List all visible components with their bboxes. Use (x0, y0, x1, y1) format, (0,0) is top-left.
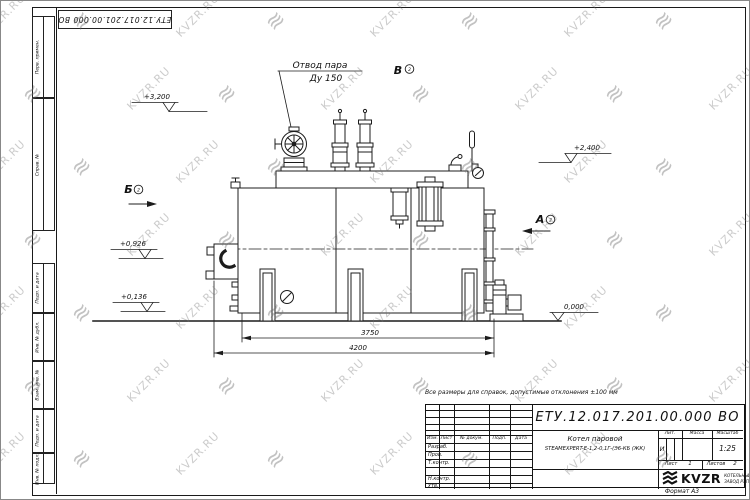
staff-utv: Утв. (426, 483, 456, 489)
col-date: Дата (510, 435, 532, 443)
view-marker-b: Б 2 (124, 183, 157, 207)
side-valve (231, 182, 240, 188)
sidebox-perv-primen: Перв. примен. (32, 16, 55, 98)
lit-value: И (658, 438, 666, 460)
view-marker-v: В 2 (394, 64, 414, 77)
view-arrow-right (147, 201, 157, 207)
svg-text:А: А (535, 213, 545, 226)
svg-text:0,000: 0,000 (564, 303, 585, 311)
nozzle-stub (230, 306, 238, 311)
svg-text:+0,136: +0,136 (121, 293, 147, 301)
reference-note: Все размеры для справок, допустимые откл… (425, 389, 618, 396)
svg-text:В: В (394, 64, 402, 77)
top-left-inverted-stamp: ЕТУ.12.017.201.00.000 ВО (58, 10, 172, 29)
lit-label: Лит. (658, 430, 682, 438)
nozzle-stub (232, 295, 238, 300)
format-label: Формат А3 (632, 488, 732, 495)
nozzle-stub (232, 282, 238, 287)
product-name: Котел паровой (532, 433, 658, 445)
staff-prov: Пров. (426, 451, 456, 459)
steam-outlet-valve (275, 127, 307, 171)
staff-razrab: Разраб. (426, 443, 456, 451)
mass-label: Масса (682, 430, 712, 438)
view-marker-a: А 2 (522, 213, 555, 234)
sidebox-inv-dubl: Инв. № дубл. (32, 313, 55, 361)
inverted-designation: ЕТУ.12.017.201.00.000 ВО (58, 15, 171, 24)
steam-outlet-label-line1: Отвод пара (293, 61, 348, 71)
gauge-glass (417, 177, 443, 231)
document-designation: ЕТУ.12.017.201.00.000 ВО (532, 405, 743, 430)
pump-motor (508, 295, 521, 310)
staff-tkontr: Т.контр. (426, 459, 456, 467)
elevation-plus-3200: +3,200 (132, 93, 207, 112)
staff-empty (426, 467, 456, 475)
frame-left-border (56, 7, 57, 494)
staff-nkontr: Н.контр. (426, 475, 456, 483)
sheets-label: Листов (704, 460, 728, 469)
svg-text:+0,926: +0,926 (120, 240, 146, 248)
steam-outlet-label-line2: Ду 150 (309, 74, 343, 84)
sidebox-sprav-no: Справ. № (32, 98, 55, 231)
elevation-plus-0136: +0,136 (113, 293, 165, 312)
steam-outlet-callout: Отвод пара Ду 150 (278, 61, 362, 127)
drawing-sheet: ЕТУ.12.017.201.00.000 ВО Перв. примен. С… (0, 0, 750, 500)
sidebox-podp-data-1: Подп. и дата (32, 263, 55, 313)
svg-text:Б: Б (124, 183, 132, 196)
sheet-value: 1 (684, 460, 696, 469)
sidebox-inv-podl: Инв. № подл. (32, 453, 55, 484)
safety-valve (356, 109, 374, 171)
dimension-4200: 4200 (349, 344, 367, 352)
company-logo-block: KVZR КОТЕЛЬНЫЙ ЗАВОД РЭП (662, 471, 750, 486)
col-izm: Изм. (426, 435, 439, 443)
burner (206, 244, 238, 279)
sidebox-podp-data-2: Подп. и дата (32, 409, 55, 453)
title-block: Изм. Лист № докум. Подп. Дата Разраб. Пр… (425, 404, 745, 488)
sidebox-vzam-inv: Взам. инв. № (32, 361, 55, 409)
elevation-plus-2400: +2,400 (539, 144, 611, 163)
dimension-3750: 3750 (361, 329, 379, 337)
elevation-plus-0926: +0,926 (111, 240, 163, 259)
scale-value: 1:25 (712, 438, 743, 460)
svg-text:2: 2 (549, 218, 552, 224)
svg-text:2: 2 (408, 67, 411, 73)
sheet-label: Лист (660, 460, 682, 469)
svg-text:+2,400: +2,400 (574, 144, 600, 152)
sheets-value: 2 (729, 460, 741, 469)
col-sign: Подп. (489, 435, 510, 443)
company-tagline: КОТЕЛЬНЫЙ ЗАВОД РЭП (724, 473, 750, 484)
company-name: KVZR (681, 471, 721, 486)
scale-label: Масштаб (712, 430, 743, 438)
leader-line (279, 71, 291, 127)
view-arrow-left (522, 228, 532, 234)
col-list: Лист (439, 435, 454, 443)
kvzr-logo-icon (662, 471, 678, 486)
safety-valve (331, 109, 349, 171)
svg-text:+3,200: +3,200 (144, 93, 170, 101)
feed-pump (490, 280, 523, 321)
product-model: STEAMEXPERT-Е-1,2-0,1Г-(Э6-КБ (ЖК) (532, 445, 658, 455)
col-docnum: № докум. (454, 435, 489, 443)
svg-text:2: 2 (137, 188, 140, 194)
pump-base (490, 314, 523, 321)
elevation-zero: 0,000 (550, 303, 598, 321)
